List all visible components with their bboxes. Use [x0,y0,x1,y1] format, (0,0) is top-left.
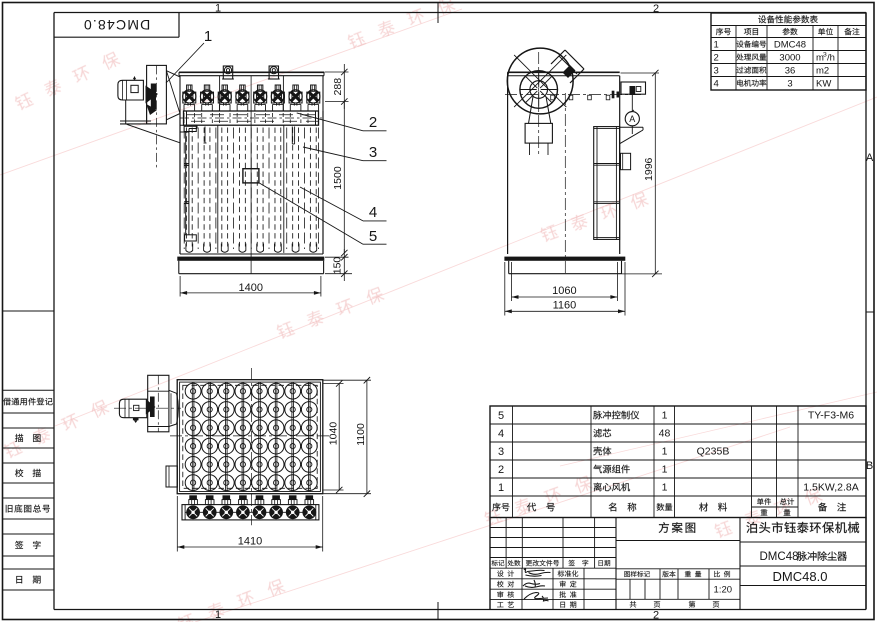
svg-text:5: 5 [498,410,504,422]
svg-text:1100: 1100 [355,423,367,446]
svg-text:4: 4 [714,78,719,89]
svg-text:1160: 1160 [553,300,577,312]
svg-text:DMC48: DMC48 [774,39,806,50]
svg-text:A: A [866,152,874,164]
svg-text:1996: 1996 [643,157,655,181]
svg-text:A: A [629,114,635,124]
svg-text:1060: 1060 [552,285,576,297]
svg-text:4: 4 [369,204,377,221]
svg-text:2: 2 [498,464,504,476]
svg-text:4: 4 [498,428,504,440]
svg-text:5: 5 [369,228,377,245]
svg-text:150: 150 [332,257,344,275]
svg-text:3: 3 [369,144,377,161]
svg-text:2: 2 [653,609,659,621]
svg-text:1: 1 [714,39,719,50]
svg-text:1500: 1500 [332,166,344,190]
svg-text:/h: /h [827,52,835,63]
svg-text:DMC48.0: DMC48.0 [83,17,151,33]
svg-text:1: 1 [662,446,668,458]
svg-text:2: 2 [369,114,377,131]
svg-text:1410: 1410 [238,536,262,548]
svg-text:1040: 1040 [327,422,339,446]
svg-text:1: 1 [204,28,212,45]
svg-text:DMC48: DMC48 [760,551,799,563]
svg-text:Q235B: Q235B [697,446,730,458]
svg-text:1: 1 [662,410,668,422]
svg-text:3: 3 [787,78,792,89]
svg-text:1: 1 [498,482,504,494]
svg-text:1: 1 [662,482,668,494]
svg-text:48: 48 [659,428,671,440]
svg-text:m2: m2 [816,65,829,76]
svg-text:1: 1 [215,609,221,621]
svg-text:1400: 1400 [239,282,263,294]
svg-text:2: 2 [714,52,719,63]
svg-text:1:20: 1:20 [714,585,733,596]
svg-text:288: 288 [332,78,344,96]
svg-text:KW: KW [816,78,831,89]
svg-text:1: 1 [662,464,668,476]
svg-text:TY-F3-M6: TY-F3-M6 [808,410,854,422]
svg-text:3: 3 [498,446,504,458]
svg-text:1: 1 [215,2,221,14]
svg-text:B: B [866,460,873,472]
svg-text:DMC48.0: DMC48.0 [773,569,828,584]
svg-text:36: 36 [785,65,796,76]
svg-text:1.5KW,2.8A: 1.5KW,2.8A [803,482,858,494]
svg-text:2: 2 [653,3,659,15]
svg-text:3000: 3000 [779,52,800,63]
svg-text:3: 3 [714,65,719,76]
